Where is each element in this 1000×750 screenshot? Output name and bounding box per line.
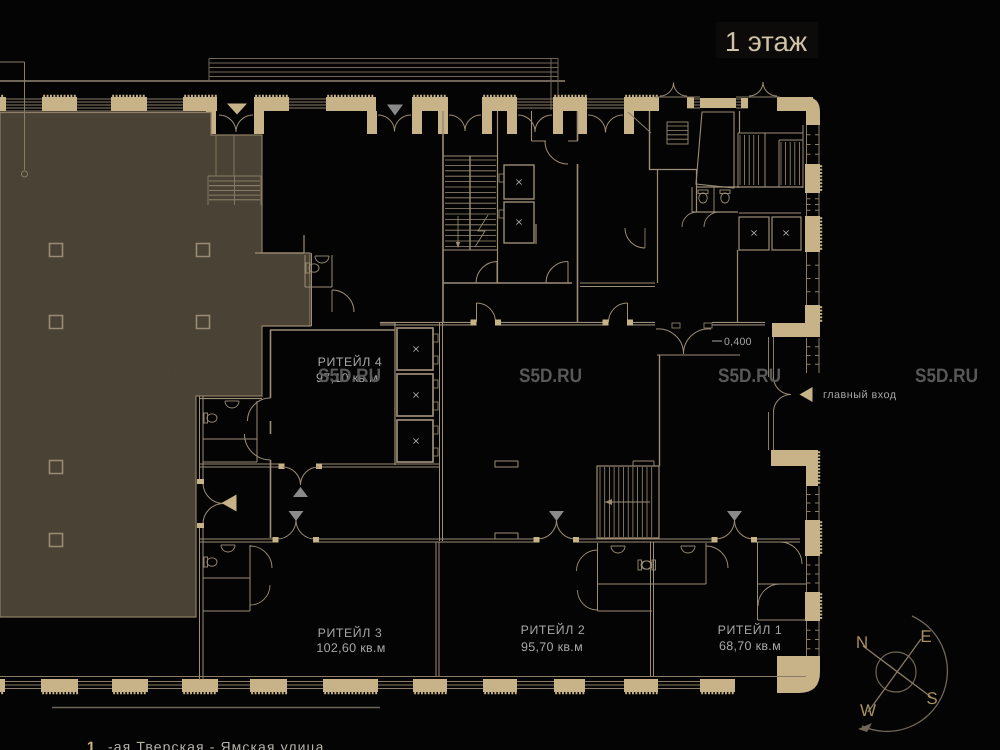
svg-text:W: W [860, 701, 876, 720]
svg-text:E: E [920, 627, 931, 646]
svg-text:S: S [926, 689, 937, 708]
svg-text:95,70 кв.м: 95,70 кв.м [521, 640, 583, 654]
svg-text:68,70 кв.м: 68,70 кв.м [719, 639, 781, 653]
svg-text:N: N [856, 633, 868, 652]
svg-text:S5D.RU: S5D.RU [718, 365, 781, 387]
svg-text:S5D.RU: S5D.RU [519, 365, 582, 387]
svg-text:S5D.RU: S5D.RU [115, 365, 178, 387]
svg-text:-ая Тверская - Ямская улица: -ая Тверская - Ямская улица [108, 739, 325, 750]
svg-text:S5D.RU: S5D.RU [915, 365, 978, 387]
svg-text:РИТЕЙЛ 2: РИТЕЙЛ 2 [521, 622, 586, 637]
svg-text:1: 1 [87, 739, 95, 750]
svg-text:102,60 кв.м: 102,60 кв.м [316, 641, 385, 655]
svg-text:S5D.RU: S5D.RU [318, 365, 381, 387]
svg-text:0,400: 0,400 [724, 336, 752, 348]
svg-text:главный вход: главный вход [823, 389, 897, 401]
svg-text:РИТЕЙЛ 3: РИТЕЙЛ 3 [318, 625, 383, 640]
svg-text:1 этаж: 1 этаж [725, 26, 808, 57]
svg-text:РИТЕЙЛ 1: РИТЕЙЛ 1 [718, 622, 783, 637]
